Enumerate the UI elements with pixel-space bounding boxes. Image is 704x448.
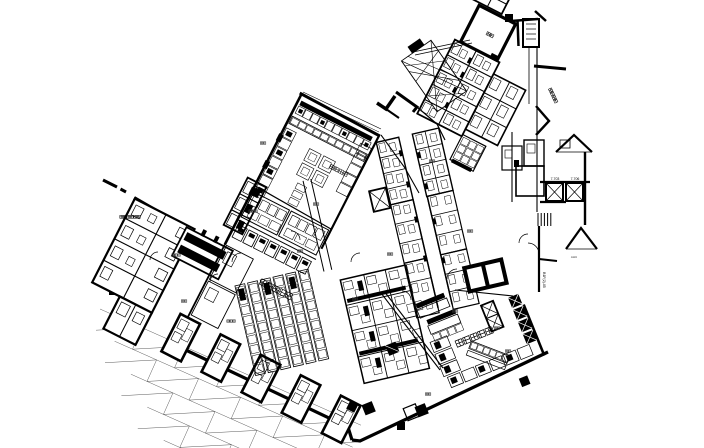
svg-text:7.703: 7.703	[551, 177, 560, 181]
svg-text:AHU: AHU	[571, 255, 577, 259]
svg-text:B1F(2)-05: B1F(2)-05	[542, 272, 546, 288]
svg-text:7.706: 7.706	[571, 177, 580, 181]
